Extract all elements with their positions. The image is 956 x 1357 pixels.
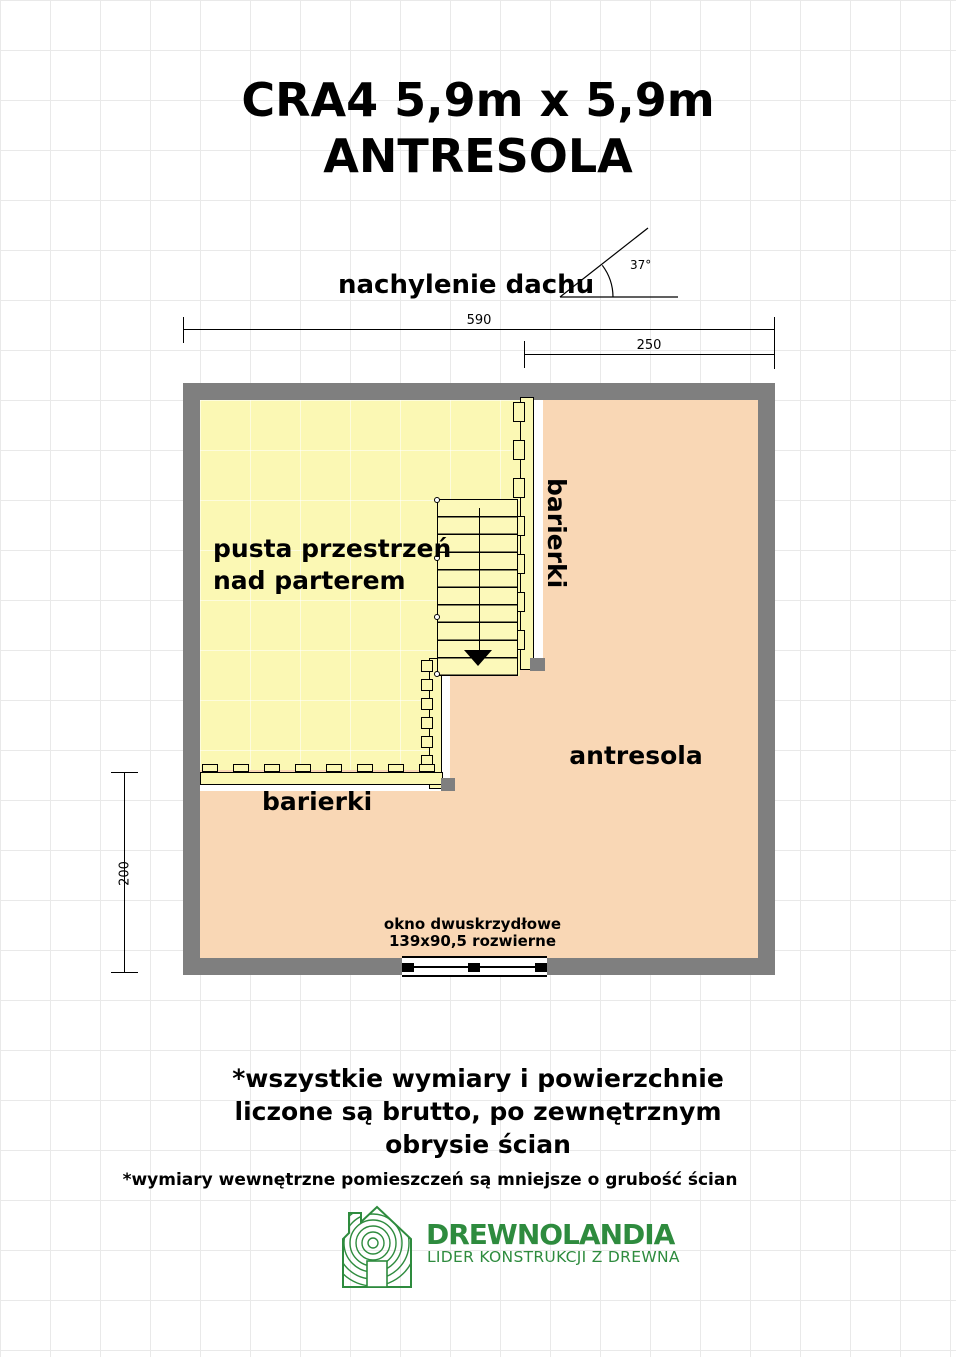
railing-lower-posts [421,660,433,774]
gross-note-line2: liczone są brutto, po zewnętrznym [0,1095,956,1128]
dimension-200-tick-bottom [111,972,138,973]
dimension-200-value: 200 [118,850,133,898]
gross-dimensions-note: *wszystkie wymiary i powierzchnie liczon… [0,1062,956,1161]
railing-horizontal-posts [202,764,450,772]
window-label-line1: okno dwuskrzydłowe [380,916,565,933]
dimension-590-line [183,329,775,330]
roof-pitch-angle-diagram [550,222,690,304]
page-title: CRA4 5,9m x 5,9m ANTRESOLA [0,72,956,184]
page-title-line2: ANTRESOLA [0,128,956,184]
wall-stub-horizontal-railing-end [441,778,455,791]
staircase-post-dot [434,671,440,677]
window-frame-center [468,963,480,972]
window-label: okno dwuskrzydłowe 139x90,5 rozwierne [380,916,565,950]
dimension-250-line [524,354,774,355]
railing-label-vertical: barierki [546,478,572,578]
page-title-line1: CRA4 5,9m x 5,9m [0,72,956,128]
staircase-down-arrow-icon [464,650,492,666]
window-frame-right [535,963,547,972]
brand-house-logo-icon [337,1203,417,1291]
brand-tagline: LIDER KONSTRUKCJI Z DREWNA [427,1248,680,1266]
wall-stub-vertical-railing-end [530,658,545,671]
staircase-post-dot [434,497,440,503]
internal-dimensions-note: *wymiary wewnętrzne pomieszczeń są mniej… [0,1170,860,1190]
floor-plan-page: { "page": { "title_line1": "CRA4 5,9m x … [0,0,956,1357]
staircase-post-dot [434,614,440,620]
staircase-direction-line [479,508,480,650]
brand-name: DREWNOLANDIA [426,1218,674,1251]
void-area-label-line2: nad parterem [213,565,451,597]
railing-label-horizontal: barierki [262,786,372,818]
gross-note-line1: *wszystkie wymiary i powierzchnie [0,1062,956,1095]
plan-void-area-lower [200,676,443,770]
void-area-label: pusta przestrzeń nad parterem [213,533,451,597]
roof-pitch-angle-value: 37° [630,258,651,272]
dimension-200-tick-top [111,772,138,773]
mezzanine-label: antresola [566,740,706,772]
dimension-250-value: 250 [524,338,774,353]
dimension-590-value: 590 [183,313,775,328]
window-symbol [402,956,547,977]
window-frame-left [402,963,414,972]
void-area-label-line1: pusta przestrzeń [213,533,451,565]
window-label-line2: 139x90,5 rozwierne [380,933,565,950]
railing-horizontal-strip [200,772,443,785]
gross-note-line3: obrysie ścian [0,1128,956,1161]
